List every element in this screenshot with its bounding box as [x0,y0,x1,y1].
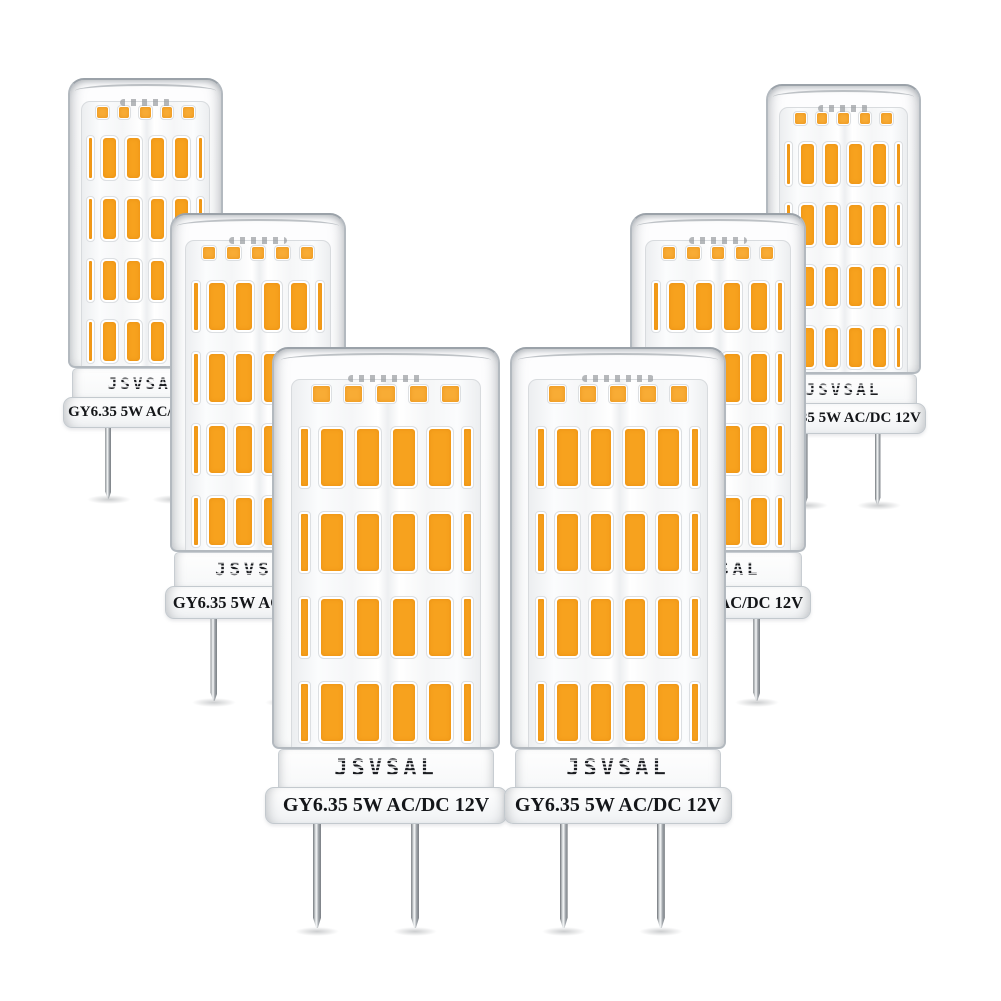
led-chip [101,197,118,241]
led-row [299,597,472,658]
led-chip [823,265,840,309]
led-chip [87,136,94,180]
led-chip [690,682,700,743]
led-chip [344,385,363,402]
led-chip [462,597,472,658]
pin-shadow [393,927,437,936]
led-chip [87,197,94,241]
led-chip [555,682,580,743]
led-chip [799,142,816,186]
led-grid [299,385,472,743]
led-chip [312,385,331,402]
led-chip [837,112,850,124]
bulb-glass [510,347,726,749]
led-chip [355,512,381,573]
led-chip [656,427,681,488]
led-chip [776,281,784,332]
led-chip [391,427,417,488]
led-chip [289,281,309,332]
spec-label: GY6.35 5W AC/DC 12V [283,794,489,817]
led-chip [101,136,118,180]
led-chip [847,265,864,309]
glass-rim [773,90,915,104]
led-chip [794,112,807,124]
led-chip [316,281,324,332]
led-row [299,427,472,488]
led-chip [776,424,784,475]
led-chip [391,512,417,573]
led-chip [391,597,417,658]
led-row [785,142,901,186]
led-chip [749,281,769,332]
led-row [536,427,700,488]
led-chip [776,496,784,547]
pin-shadow [639,927,683,936]
led-chip [652,281,660,332]
led-chip [427,512,453,573]
lead-wires [229,237,288,244]
led-chip [125,259,142,303]
led-chip [555,512,580,573]
led-row [299,682,472,743]
led-chip [125,197,142,241]
led-top-row [785,112,901,124]
led-chip [579,385,597,402]
base-spec-band: GY6.35 5W AC/DC 12V [504,787,733,824]
led-chip [226,246,241,260]
led-chip [536,427,546,488]
led-chip [173,136,190,180]
led-chip [299,427,309,488]
pin-shadow [192,698,236,707]
led-chip [749,424,769,475]
led-chip [182,106,195,118]
led-chip [871,265,888,309]
led-chip [656,682,681,743]
led-chip [251,246,266,260]
led-chip [589,512,614,573]
led-chip [462,427,472,488]
led-chip [690,512,700,573]
lead-wires [582,375,654,382]
led-chip [639,385,657,402]
led-chip [623,427,648,488]
led-chip [319,597,345,658]
led-row [536,597,700,658]
led-chip [462,512,472,573]
led-chip [192,424,200,475]
led-column [528,379,708,747]
glass-rim [177,219,339,233]
lead-wires [348,375,424,382]
led-chip [197,136,204,180]
bulb-front-left: JSVSAL GY6.35 5W AC/DC 12V [272,347,500,936]
pin-left [210,619,217,701]
pin-right [875,434,881,505]
pin-right [657,824,665,928]
led-chip [192,496,200,547]
led-chip [895,326,902,370]
led-row [536,682,700,743]
led-chip [670,385,688,402]
led-chip [299,597,309,658]
led-chip [207,424,227,475]
led-chip [656,512,681,573]
led-chip [548,385,566,402]
brand-label: JSVSAL [334,756,437,781]
led-chip [589,597,614,658]
led-chip [161,106,174,118]
pin-left [560,824,568,928]
led-chip [623,597,648,658]
led-chip [847,326,864,370]
led-chip [101,320,118,364]
brand-label: JSVSAL [566,756,669,781]
led-chip [376,385,395,402]
led-chip [234,496,254,547]
pin-right [753,619,760,701]
led-chip [319,682,345,743]
led-chip [207,496,227,547]
led-chip [871,203,888,247]
led-chip [207,281,227,332]
led-chip [555,597,580,658]
led-chip [662,246,677,260]
led-chip [847,142,864,186]
led-chip [462,682,472,743]
glass-rim [75,84,217,98]
glass-rim [281,353,492,367]
led-chip [536,597,546,658]
led-chip [427,597,453,658]
led-chip [816,112,829,124]
led-chip [355,682,381,743]
led-chip [96,106,109,118]
glass-rim [518,353,717,367]
led-chip [275,246,290,260]
base-spec-band: GY6.35 5W AC/DC 12V [265,787,507,824]
bi-pin-base [510,824,726,936]
led-row [652,281,785,332]
led-chip [823,142,840,186]
led-chip [149,259,166,303]
led-chip [207,352,227,403]
led-chip [441,385,460,402]
led-top-row [299,385,472,402]
led-top-row [652,246,785,260]
led-chip [609,385,627,402]
led-chip [871,142,888,186]
led-chip [87,320,94,364]
led-chip [690,427,700,488]
base-brand-band: JSVSAL [278,749,495,787]
led-chip [711,246,726,260]
led-chip [667,281,687,332]
led-chip [656,597,681,658]
led-row [299,512,472,573]
led-chip [536,512,546,573]
lead-wires [818,105,869,112]
led-chip [427,682,453,743]
pin-shadow [87,495,131,504]
led-chip [427,427,453,488]
led-grid [536,385,700,743]
led-chip [125,136,142,180]
led-chip [847,203,864,247]
led-chip [623,682,648,743]
pin-right [411,824,419,928]
base-brand-band: JSVSAL [515,749,720,787]
led-chip [694,281,714,332]
led-chip [262,281,282,332]
led-chip [299,682,309,743]
led-chip [749,352,769,403]
led-chip [125,320,142,364]
led-chip [895,265,902,309]
pin-left [105,428,111,499]
led-chip [299,512,309,573]
glass-rim [637,219,799,233]
led-chip [300,246,315,260]
led-top-row [536,385,700,402]
led-chip [319,427,345,488]
led-chip [536,682,546,743]
led-chip [623,512,648,573]
spec-label: GY6.35 5W AC/DC 12V [515,794,721,817]
lead-wires [689,237,748,244]
lead-wires [120,99,171,106]
led-chip [722,281,742,332]
led-top-row [87,106,203,118]
led-chip [192,281,200,332]
led-chip [690,597,700,658]
led-row [87,136,203,180]
led-chip [192,352,200,403]
led-chip [859,112,872,124]
pin-shadow [542,927,586,936]
led-chip [555,427,580,488]
led-chip [776,352,784,403]
led-chip [355,427,381,488]
led-chip [760,246,775,260]
led-chip [234,424,254,475]
led-chip [749,496,769,547]
pin-left [313,824,321,928]
brand-label: JSVSAL [806,380,882,399]
led-chip [118,106,131,118]
led-top-row [192,246,325,260]
led-chip [686,246,701,260]
led-chip [895,203,902,247]
led-chip [149,136,166,180]
led-chip [880,112,893,124]
led-column [291,379,481,747]
led-row [536,512,700,573]
led-chip [234,352,254,403]
led-chip [149,197,166,241]
bi-pin-base [272,824,500,936]
led-chip [149,320,166,364]
led-chip [785,142,792,186]
bulb-glass [272,347,500,749]
led-row [192,281,325,332]
bulb-front-right: JSVSAL GY6.35 5W AC/DC 12V [510,347,726,936]
led-chip [589,427,614,488]
led-chip [391,682,417,743]
led-chip [871,326,888,370]
pin-shadow [735,698,779,707]
led-chip [319,512,345,573]
led-chip [202,246,217,260]
led-chip [409,385,428,402]
led-chip [589,682,614,743]
led-chip [355,597,381,658]
pin-shadow [295,927,339,936]
led-chip [735,246,750,260]
pin-shadow [857,501,901,510]
led-chip [234,281,254,332]
led-chip [895,142,902,186]
led-chip [139,106,152,118]
product-photo-scene: JSVSAL GY6.35 5W AC/DC 12V JSVSAL GY6.35… [0,0,1001,1001]
led-chip [823,326,840,370]
led-chip [823,203,840,247]
led-chip [87,259,94,303]
led-chip [101,259,118,303]
